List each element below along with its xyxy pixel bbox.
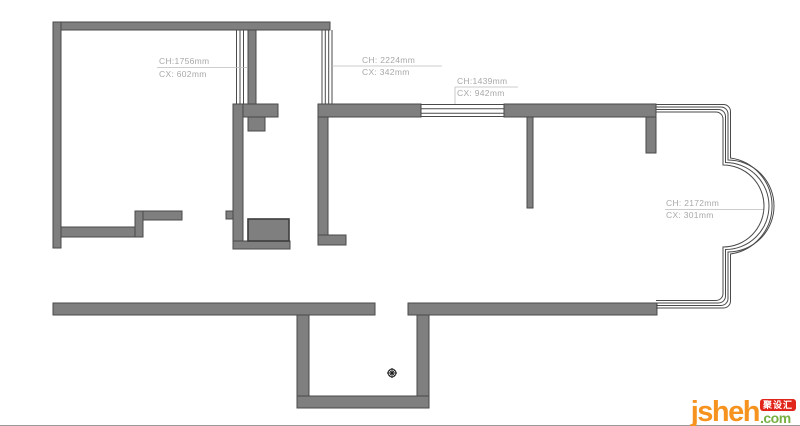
wall-window-a-jamb <box>248 30 256 104</box>
shower-block <box>248 219 289 241</box>
wall-balcony-bottom <box>297 396 429 408</box>
wall-bottom-right <box>408 303 657 315</box>
wall-balcony-left <box>297 315 309 408</box>
annotation-ch-label: CH: 2224mm <box>362 55 415 65</box>
annotation-cx-label: CX: 342mm <box>362 67 410 77</box>
annotation-ch-label: CH: 2172mm <box>666 198 719 208</box>
annotation-window-b: CH: 2224mm CX: 342mm <box>332 55 442 77</box>
annotation-window-c: CH:1439mm CX: 942mm <box>455 76 518 104</box>
annotation-cx-label: CX: 301mm <box>666 210 714 220</box>
annotation-cx-label: CX: 602mm <box>159 69 207 79</box>
wall-step-upper <box>143 211 182 220</box>
wall-interior-mid <box>527 117 533 208</box>
wall-top <box>53 22 330 30</box>
annotation-ch-label: CH:1756mm <box>159 56 209 66</box>
annotation-cx-label: CX: 942mm <box>457 88 505 98</box>
watermark-logo: jsheh 聚设汇 .com <box>691 389 796 425</box>
wall-long-right <box>504 104 656 117</box>
wall-bath-left <box>233 104 243 249</box>
logo-right-block: 聚设汇 .com <box>760 399 796 424</box>
wall-step-lower <box>61 227 143 237</box>
window-a <box>237 30 244 104</box>
wall-bath-right-stub <box>318 235 346 245</box>
floorplan-canvas: CH:1756mm CX: 602mm CH: 2224mm CX: 342mm… <box>0 0 800 426</box>
logo-tld: .com <box>760 412 791 424</box>
wall-bottom-left <box>53 303 375 315</box>
wall-left-tab <box>226 211 233 219</box>
window-c <box>421 105 504 117</box>
annotation-bay-window: CH: 2172mm CX: 301mm <box>665 198 763 220</box>
wall-bath-right <box>318 104 328 245</box>
wall-long-left <box>318 104 421 117</box>
wall-duct-block <box>248 117 265 131</box>
wall-bath-bottom <box>233 241 290 249</box>
window-b <box>322 30 332 104</box>
wall-step-riser <box>135 211 143 237</box>
floor-drain-icon <box>387 368 397 378</box>
wall-balcony-right <box>417 315 429 396</box>
logo-wordmark: jsheh <box>691 399 759 425</box>
annotation-ch-label: CH:1439mm <box>457 76 507 86</box>
wall-left <box>53 22 61 248</box>
walls <box>53 22 657 408</box>
annotation-window-a: CH:1756mm CX: 602mm <box>157 56 247 79</box>
floorplan-drawing: CH:1756mm CX: 602mm CH: 2224mm CX: 342mm… <box>0 0 800 426</box>
wall-right-stub <box>646 117 656 153</box>
